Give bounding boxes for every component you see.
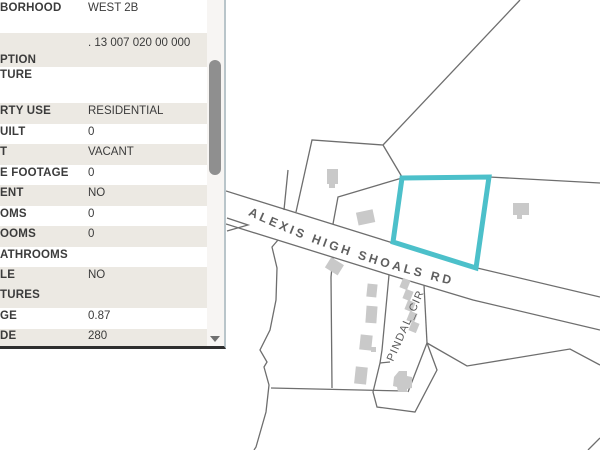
parcel-line — [489, 177, 600, 183]
building-icon — [517, 214, 522, 219]
building-icon — [354, 366, 368, 384]
selected-parcel-highlight[interactable] — [393, 177, 489, 268]
row-value: 280 — [88, 330, 107, 342]
row-label: T — [0, 146, 7, 158]
row-label: GE — [0, 310, 17, 322]
road-edge-top — [226, 191, 600, 297]
row-property-use: RTY USE RESIDENTIAL — [0, 103, 207, 124]
row-label: DE — [0, 330, 16, 342]
gis-parcel-viewer: BORHOOD WEST 2B . 13 007 020 00 000 PTIO… — [0, 0, 600, 450]
row-basement: ENT NO — [0, 185, 207, 206]
row-code: DE 280 — [0, 329, 207, 346]
parcel-line — [380, 362, 390, 363]
building-icon — [399, 278, 410, 290]
building-icon — [359, 334, 373, 350]
row-label: TURE — [0, 69, 32, 81]
row-value: NO — [88, 269, 105, 281]
row-label: OMS — [0, 208, 27, 220]
row-label: RTY USE — [0, 105, 51, 117]
row-bedrooms: OMS 0 — [0, 206, 207, 227]
row-square-footage: E FOOTAGE 0 — [0, 165, 207, 186]
row-label-line2: TURES — [0, 289, 40, 301]
row-value: NO — [88, 187, 105, 199]
property-details-panel: BORHOOD WEST 2B . 13 007 020 00 000 PTIO… — [0, 0, 226, 349]
scrollbar-thumb[interactable] — [209, 60, 221, 175]
building-icon — [371, 347, 376, 352]
parcel-line — [254, 240, 278, 450]
parcel-line — [331, 257, 333, 388]
row-label: UILT — [0, 126, 26, 138]
building-icon — [356, 209, 375, 225]
row-year-built: UILT 0 — [0, 124, 207, 145]
parcel-line — [383, 0, 520, 145]
parcel-line — [296, 140, 383, 212]
parcel-line — [427, 343, 600, 366]
row-label: BORHOOD — [0, 2, 61, 14]
row-description: . 13 007 020 00 000 PTION — [0, 33, 207, 67]
row-neighborhood: BORHOOD WEST 2B — [0, 0, 207, 33]
row-value: 0 — [88, 167, 94, 179]
parcel-line — [588, 438, 600, 450]
building-icon — [327, 169, 338, 184]
building-icon — [366, 284, 377, 298]
building-icon — [513, 203, 529, 215]
scrollbar-down-button[interactable] — [209, 334, 221, 344]
row-value: WEST 2B — [88, 2, 138, 14]
parcel-line — [284, 170, 288, 210]
row-value: RESIDENTIAL — [88, 105, 163, 117]
row-label: E FOOTAGE — [0, 167, 69, 179]
row-half-bathrooms: ATHROOMS — [0, 247, 207, 268]
row-label: LE — [0, 269, 15, 281]
parcel-line — [271, 388, 405, 391]
row-label: ATHROOMS — [0, 249, 68, 261]
parcel-sliver — [227, 218, 248, 231]
row-value: 0 — [88, 126, 94, 138]
row-status: T VACANT — [0, 144, 207, 165]
chevron-down-icon — [210, 336, 220, 342]
row-bathrooms: OOMS 0 — [0, 226, 207, 247]
property-attribute-table: BORHOOD WEST 2B . 13 007 020 00 000 PTIO… — [0, 0, 207, 346]
row-value: . 13 007 020 00 000 — [88, 37, 190, 49]
road-name-label: ALEXIS HIGH SHOALS RD — [246, 205, 455, 288]
building-icon — [329, 183, 335, 188]
row-label-line2: PTION — [0, 54, 36, 66]
row-value: 0 — [88, 228, 94, 240]
row-mobile-features: LE NO TURES — [0, 267, 207, 308]
panel-scrollbar[interactable] — [207, 0, 224, 346]
row-value: 0 — [88, 208, 94, 220]
row-value: 0.87 — [88, 310, 110, 322]
row-label: OOMS — [0, 228, 36, 240]
parcel-map[interactable]: ALEXIS HIGH SHOALS RD PINDAL_CIR — [226, 0, 600, 450]
row-label: ENT — [0, 187, 24, 199]
row-picture: TURE — [0, 67, 207, 103]
row-acreage: GE 0.87 — [0, 308, 207, 329]
row-value: VACANT — [88, 146, 134, 158]
parcel-line — [383, 145, 402, 177]
building-icon — [365, 306, 377, 324]
